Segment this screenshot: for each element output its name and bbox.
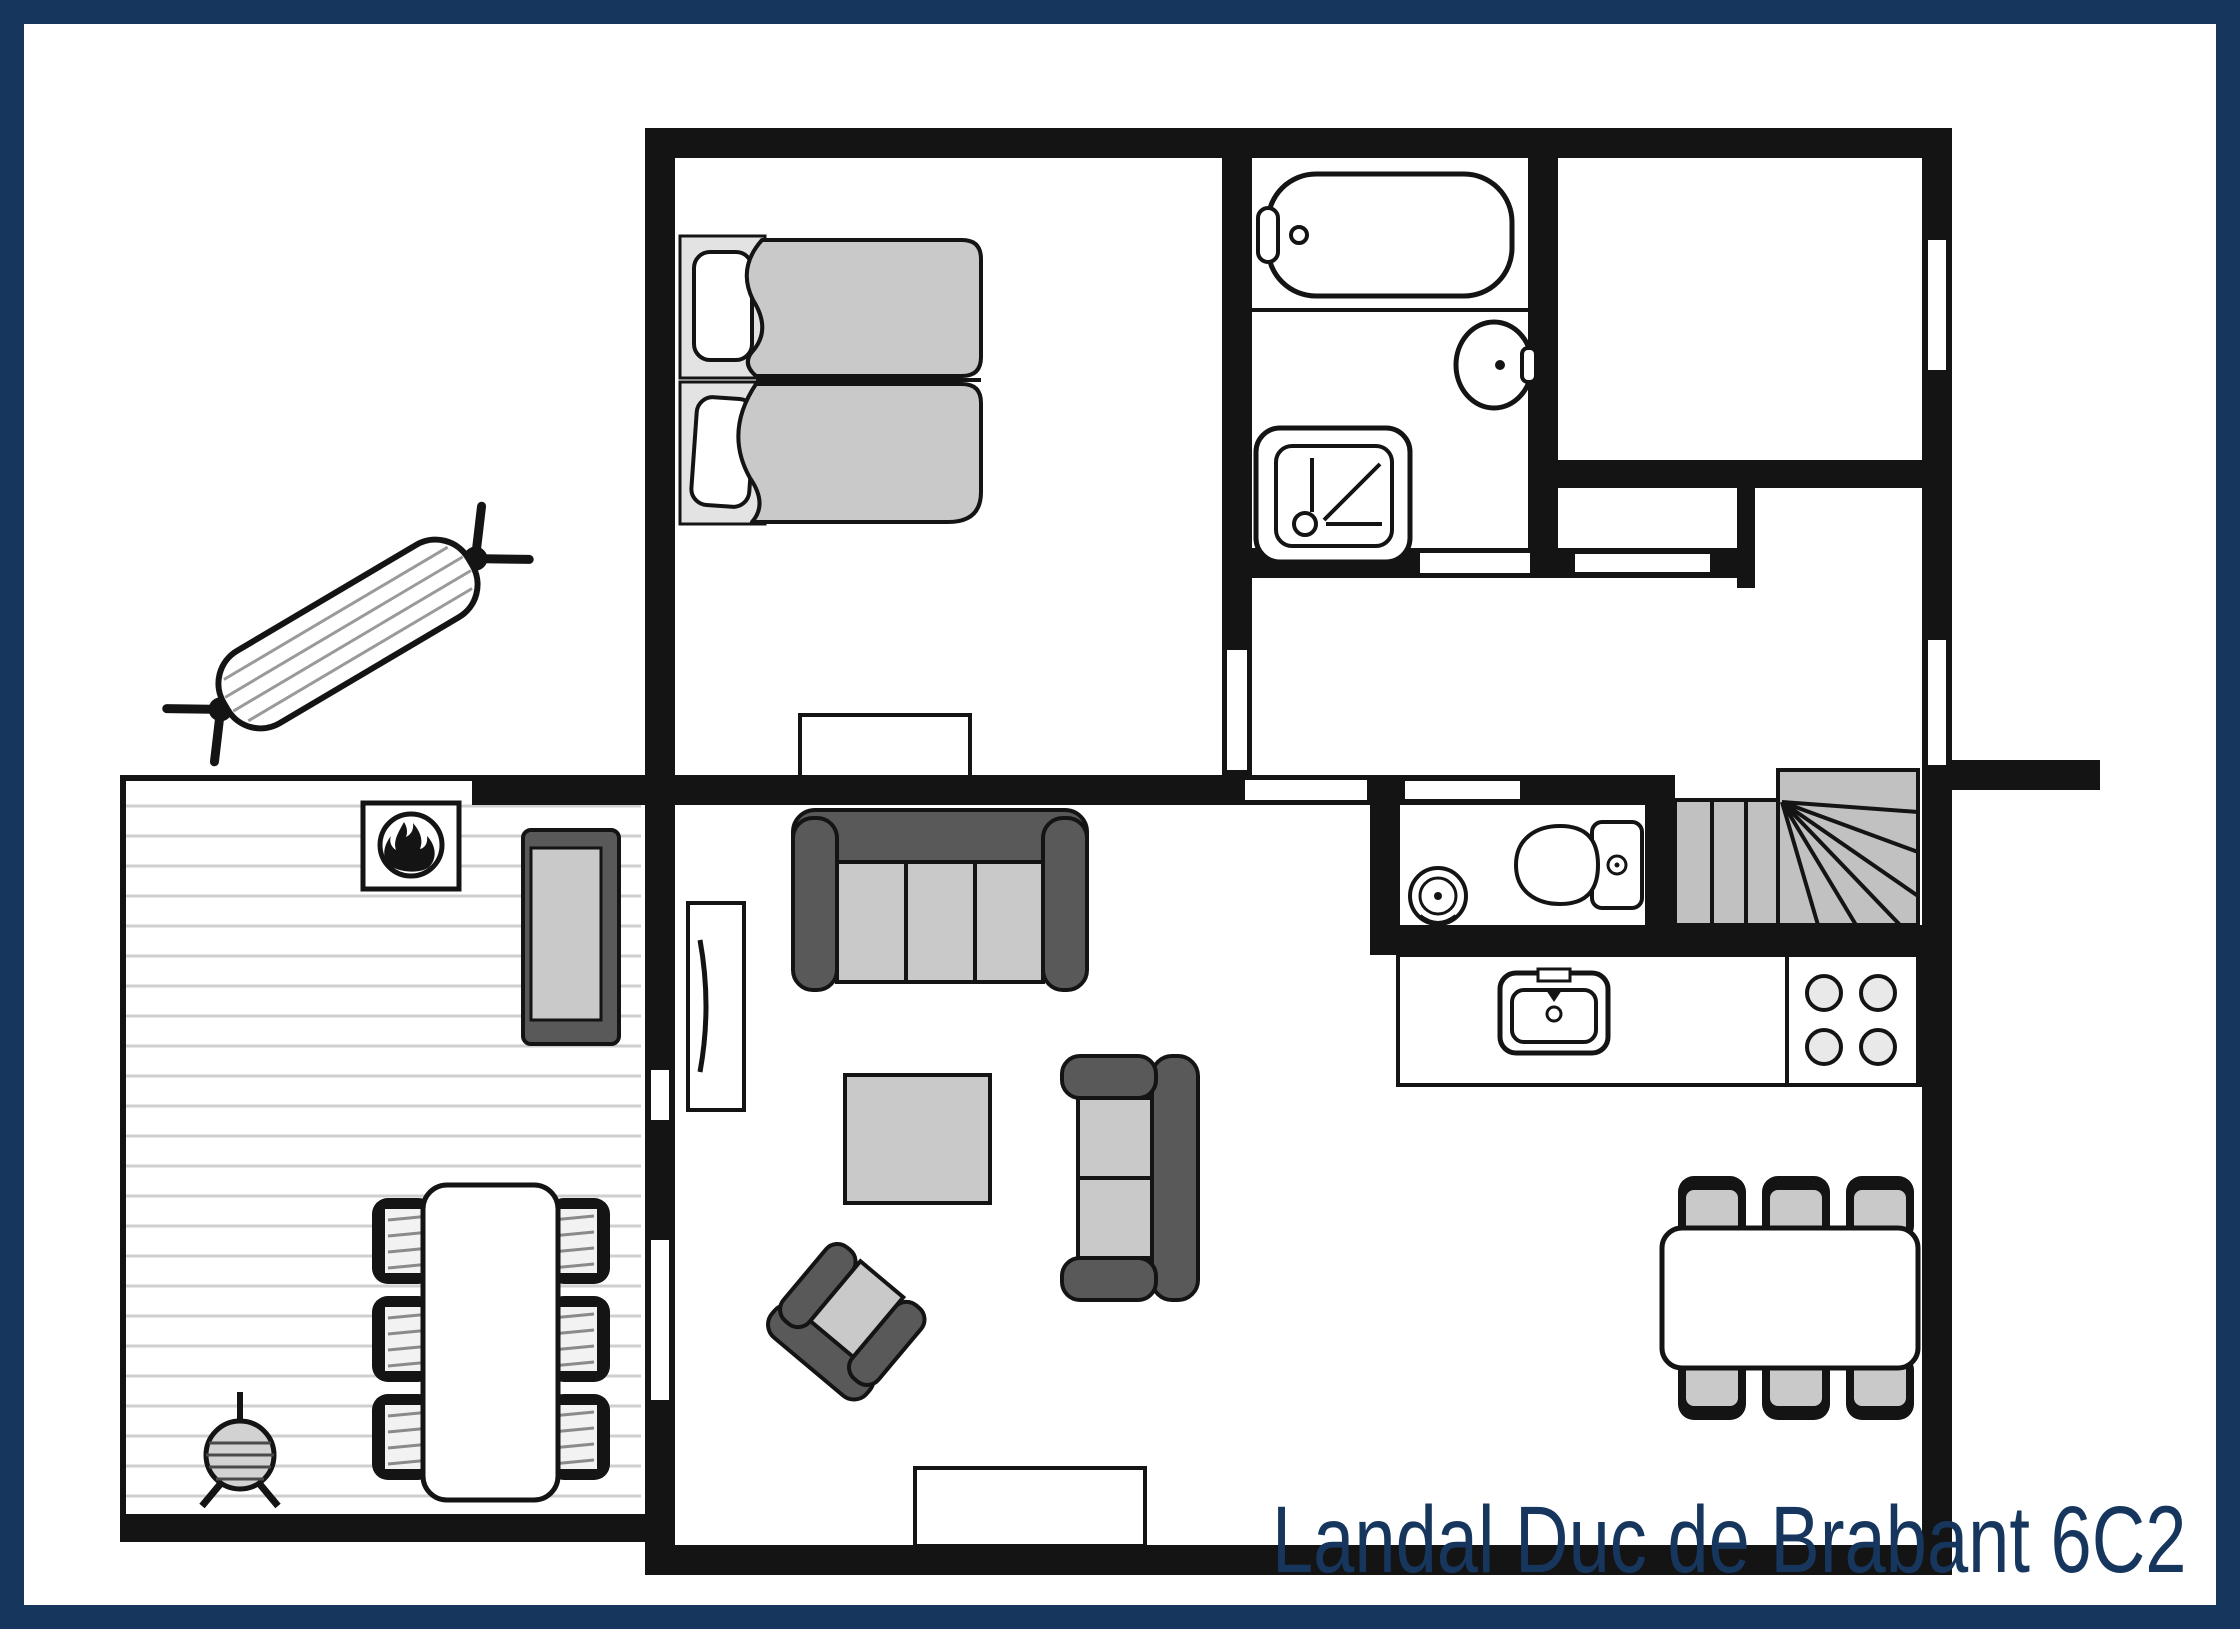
door-living-to-hall <box>1245 775 1367 805</box>
toilet-icon <box>1516 822 1642 908</box>
stove-icon <box>1787 955 1918 1085</box>
pillow-1 <box>694 252 752 360</box>
window-right-top <box>1922 240 1952 370</box>
wall-mid-pier <box>1367 775 1405 805</box>
floor-plan-drawing <box>24 24 2216 1605</box>
living-room-sideboard <box>915 1468 1145 1546</box>
bathtub-faucet <box>1258 208 1278 262</box>
door-bathroom <box>1420 548 1530 578</box>
terrace-table <box>423 1185 558 1500</box>
window-terrace-large <box>645 1240 675 1400</box>
wall-exterior-stub <box>1952 760 2100 790</box>
wall-stairs-bottom <box>1370 925 1952 955</box>
armchair-icon <box>761 1238 931 1407</box>
bedroom-sideboard <box>800 715 970 777</box>
window-hall <box>1405 775 1520 805</box>
terrace-left-edge <box>120 775 126 1542</box>
wall-mid-left <box>472 775 1245 805</box>
wall-topright-room-bottom <box>1558 460 1922 488</box>
sofa-3-seat-icon <box>793 810 1087 990</box>
garden-bench-icon <box>523 830 619 1044</box>
hammock-icon <box>160 499 537 769</box>
door-bedroom <box>1222 650 1252 770</box>
staircase-winder-icon <box>1675 770 1918 925</box>
duvet-2 <box>738 384 981 522</box>
terrace-top-edge <box>120 775 472 781</box>
sofa-2-seat-icon <box>1062 1056 1198 1300</box>
wall-closet-divider <box>1737 488 1755 588</box>
floor-plan-page: Landal Duc de Brabant 6C2 <box>0 0 2240 1629</box>
coffee-table-icon <box>845 1075 990 1203</box>
wall-top <box>645 128 1952 158</box>
fireplace-icon <box>363 803 459 889</box>
plan-title: Landal Duc de Brabant 6C2 <box>1271 1486 2186 1595</box>
tv-cabinet-icon <box>688 903 744 1110</box>
window-closet <box>1575 548 1710 578</box>
kitchen-sink-icon <box>1500 969 1608 1053</box>
washbasin-icon <box>1456 322 1536 408</box>
bathtub-drain <box>1291 227 1307 243</box>
duvet-1 <box>747 240 981 376</box>
bathroom <box>1252 174 1536 562</box>
terrace-bottom-edge <box>120 1514 647 1542</box>
bedroom-double-bed <box>680 236 981 524</box>
window-terrace-small <box>645 1070 675 1120</box>
toilet-room <box>1410 822 1642 924</box>
terrace-dining-set <box>372 1185 610 1500</box>
corner-sink-icon <box>1410 868 1466 924</box>
shower-icon <box>1256 428 1410 562</box>
kitchen <box>1398 955 1920 1085</box>
dining-set-indoor <box>1662 1176 1918 1420</box>
dining-table-indoor <box>1662 1228 1918 1368</box>
wall-mid-right <box>1520 775 1675 805</box>
window-right-hall <box>1922 640 1952 765</box>
